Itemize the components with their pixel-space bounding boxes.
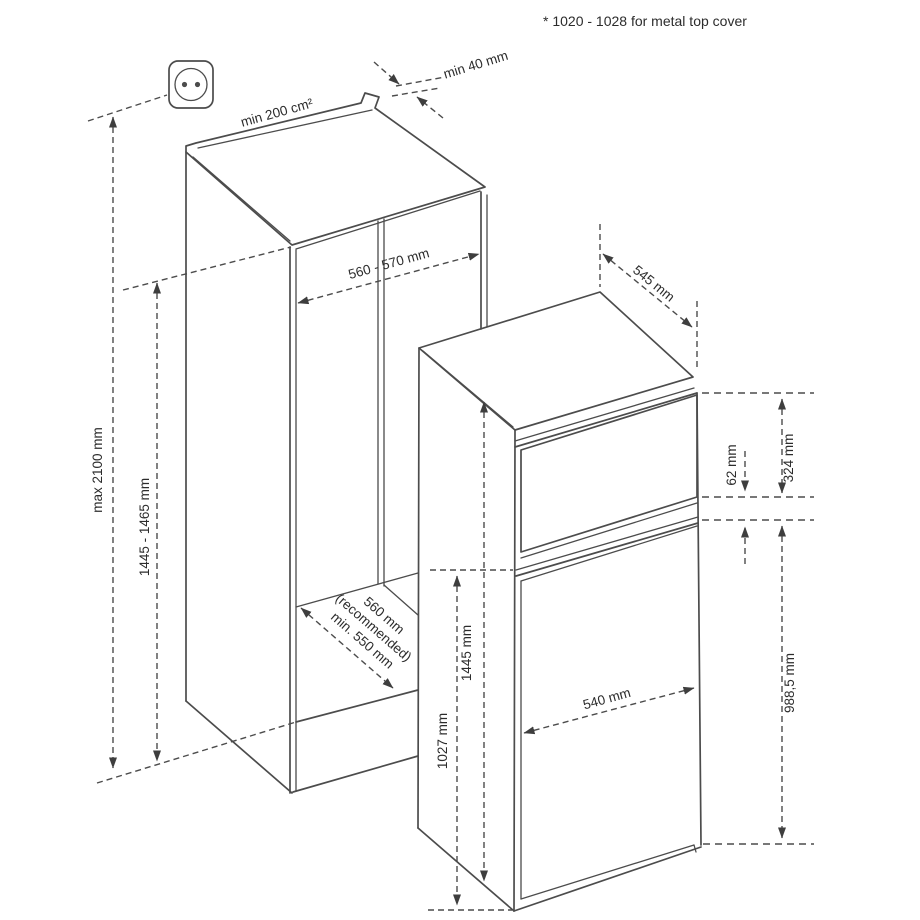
installation-diagram-page: * 1020 - 1028 for metal top cover min 20… (0, 0, 920, 920)
right-extension-lines (702, 393, 814, 844)
cabinet-niche-drawing (186, 93, 487, 793)
dim-label-appliance-width: 540 mm (581, 685, 632, 712)
dim-label-door-gap: 62 mm (724, 444, 739, 485)
dimension-appliance-depth (600, 224, 697, 371)
installation-diagram: * 1020 - 1028 for metal top cover min 20… (0, 0, 920, 920)
fridge-drawing (418, 292, 701, 911)
niche-floor-front-edge (296, 690, 418, 722)
power-socket-icon (169, 61, 213, 108)
fridge-plinth-edge (514, 847, 701, 911)
fridge-front-left-edge (514, 430, 515, 911)
cabinet-bottom-left-edge (186, 701, 292, 793)
dimension-top-clearance (374, 62, 445, 118)
dim-label-appliance-depth: 545 mm (630, 262, 677, 304)
dim-label-lower-section-height: 988,5 mm (782, 653, 797, 713)
dim-label-niche-depth: 560 mm (recommended) min. 550 mm (322, 579, 425, 678)
dim-label-niche-width: 560 - 570 mm (347, 245, 431, 282)
dim-label-lower-door-height: 1027 mm (435, 713, 450, 769)
dimension-max-overall-height (97, 117, 296, 783)
fridge-back-left-edge (418, 348, 419, 828)
dim-label-max-overall-height: max 2100 mm (90, 427, 105, 513)
dim-label-niche-height: 1445 - 1465 mm (137, 478, 152, 576)
fridge-bottom-left-edge (418, 828, 514, 911)
niche-floor-back-edge (296, 573, 418, 607)
cabinet-bottom-front-edge (293, 756, 418, 792)
metal-top-cover-note: * 1020 - 1028 for metal top cover (543, 13, 747, 29)
dim-label-freezer-door-height: 324 mm (781, 434, 796, 483)
dim-label-top-clearance: min 40 mm (442, 48, 510, 82)
socket-reference-line (88, 95, 167, 121)
dim-label-appliance-height: 1445 mm (459, 625, 474, 681)
